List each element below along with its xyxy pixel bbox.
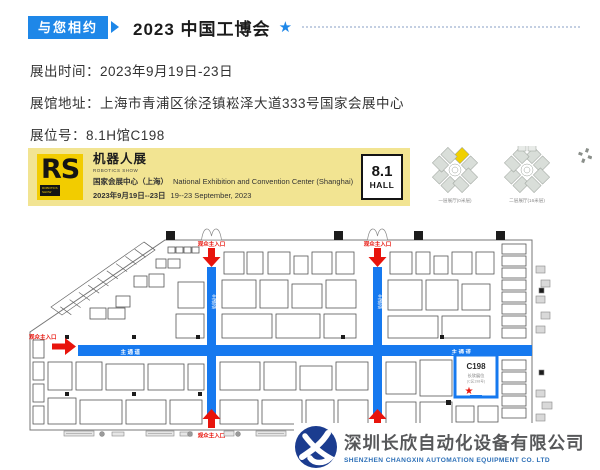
clover-floor2: [504, 146, 549, 193]
company-name-en: SHENZHEN CHANGXIN AUTOMATION EQUIPMENT C…: [344, 457, 585, 464]
booth-line1: 长欣展位: [468, 372, 485, 379]
banner-title-en: ROBOTICS SHOW: [93, 168, 361, 173]
hall-floor-plan: 主通道 主通道 主通道 主通道 观众主入口 观众主入口 观众主入口 观众主入口 …: [28, 222, 568, 440]
info-booth: 展位号：8.1H馆C198: [30, 124, 404, 144]
hall-number: 8.1: [372, 164, 393, 179]
aisle-label-h1: 主通道: [120, 348, 141, 356]
info-booth-label: 展位号：: [30, 128, 86, 143]
aisle-label-v1: 主通道: [211, 293, 217, 310]
info-address-value: 上海市青浦区徐泾镇崧泽大道333号国家会展中心: [100, 96, 404, 111]
hall-word: HALL: [370, 180, 395, 190]
robotics-show-banner: RS ROBOTICS SHOW 机器人展 ROBOTICS SHOW 国家会展…: [28, 148, 410, 206]
info-time-label: 展出时间：: [30, 64, 100, 79]
aisle-label-v2: 主通道: [377, 293, 383, 310]
booth-c198: C198 长欣展位 (C区198号) ★: [455, 353, 497, 399]
rs-logo-text: RS: [41, 154, 79, 185]
booth-code: C198: [466, 362, 486, 371]
aisle-vertical-left: [207, 267, 216, 415]
entrance-canopies: [202, 229, 388, 240]
venue-overview-floor1: 一层展厅(0米层): [420, 146, 490, 206]
rs-logo-subtext: ROBOTICS SHOW: [40, 185, 60, 196]
rs-logo: RS ROBOTICS SHOW: [37, 154, 83, 200]
necc-mini-icon: [578, 148, 592, 164]
info-address: 展馆地址：上海市青浦区徐泾镇崧泽大道333号国家会展中心: [30, 92, 404, 112]
page-title: 2023 中国工博会: [133, 15, 271, 40]
company-footer: 深圳长欣自动化设备有限公司 SHENZHEN CHANGXIN AUTOMATI…: [294, 423, 600, 470]
aisle-vertical-right: [373, 267, 382, 415]
entrance-label-top1: 观众主入口: [198, 240, 226, 248]
company-name-cn: 深圳长欣自动化设备有限公司: [344, 430, 585, 455]
banner-date-en: 19--23 September, 2023: [171, 191, 252, 200]
entrance-label-top2: 观众主入口: [364, 240, 392, 248]
flyer-page: 与您相约 2023 中国工博会 ★ 展出时间：2023年9月19日-23日 展馆…: [0, 0, 600, 470]
star-icon: ★: [279, 18, 292, 36]
company-logo-icon: [294, 425, 338, 469]
company-names: 深圳长欣自动化设备有限公司 SHENZHEN CHANGXIN AUTOMATI…: [344, 430, 585, 464]
badge-arrow-icon: [111, 21, 119, 33]
venue-overview-floor2: 二层展厅(16米层): [492, 146, 562, 206]
banner-title-cn: 机器人展: [93, 153, 361, 167]
booth-line2: (C区198号): [467, 379, 485, 384]
info-address-label: 展馆地址：: [30, 96, 100, 111]
banner-venue-cn: 国家会展中心（上海）: [93, 177, 168, 186]
banner-venue-en: National Exhibition and Convention Cente…: [173, 177, 353, 186]
appointment-badge: 与您相约: [28, 16, 108, 39]
exhibition-info: 展出时间：2023年9月19日-23日 展馆地址：上海市青浦区徐泾镇崧泽大道33…: [30, 60, 404, 144]
floor2-caption: 二层展厅(16米层): [509, 197, 545, 204]
entrance-label-bottom1: 观众主入口: [198, 432, 226, 440]
header: 与您相约 2023 中国工博会 ★: [28, 14, 584, 40]
info-booth-value: 8.1H馆C198: [86, 128, 165, 143]
clover-floor1: [432, 147, 477, 192]
banner-date-cn: 2023年9月19日--23日: [93, 191, 166, 200]
banner-date: 2023年9月19日--23日19--23 September, 2023: [93, 190, 361, 201]
dotted-divider: [302, 26, 580, 28]
floor1-caption: 一层展厅(0米层): [438, 197, 472, 204]
info-time: 展出时间：2023年9月19日-23日: [30, 60, 404, 80]
right-side-structures: [536, 266, 552, 421]
info-time-value: 2023年9月19日-23日: [100, 64, 233, 79]
hall-number-box: 8.1 HALL: [361, 154, 403, 200]
banner-venue: 国家会展中心（上海）National Exhibition and Conven…: [93, 176, 361, 187]
banner-text: 机器人展 ROBOTICS SHOW 国家会展中心（上海）National Ex…: [93, 153, 361, 201]
entrance-label-left: 观众主入口: [29, 333, 57, 341]
booth-star-icon: ★: [465, 386, 474, 397]
bottom-structures: [64, 431, 286, 436]
